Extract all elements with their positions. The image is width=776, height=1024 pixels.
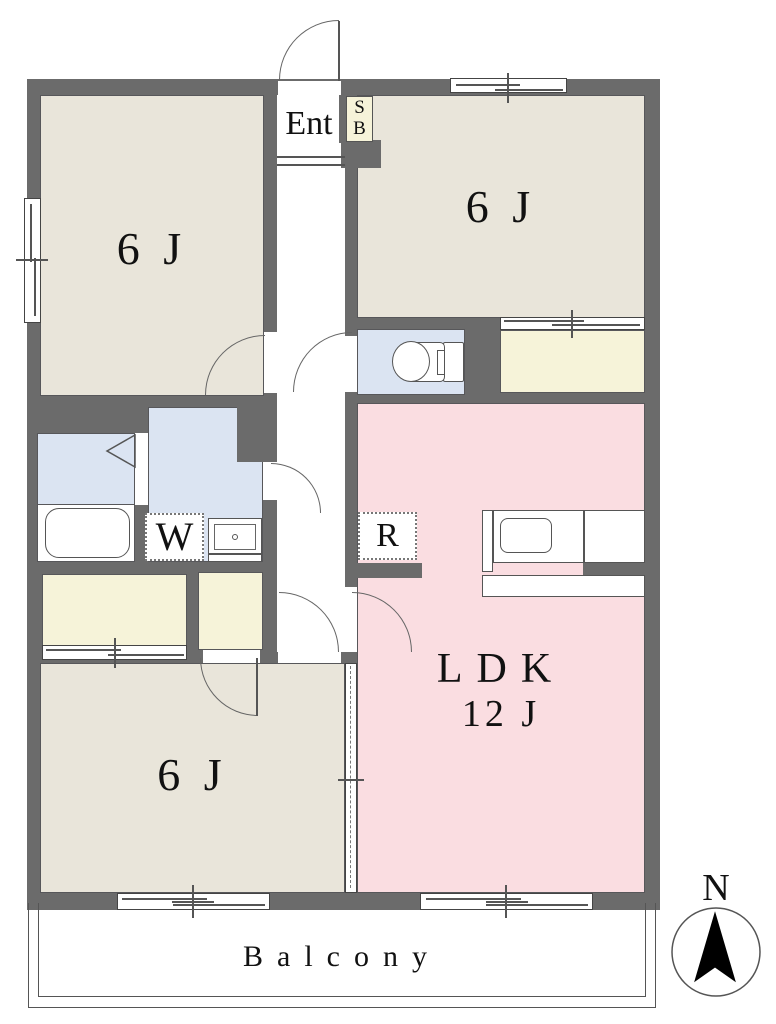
shoe-box-label-s: S: [347, 98, 372, 119]
kitchen-sink: [500, 518, 552, 553]
entrance-door-opening: [278, 81, 341, 95]
window-bedroom-ne-top: [450, 78, 567, 93]
window-bedroom-ne-top-pane1: [456, 84, 520, 86]
window-bedroom-nw-left-pane1: [30, 204, 32, 262]
window-bedroom-nw-left: [24, 198, 41, 323]
shoe-box: S B: [346, 96, 373, 142]
entrance-step-line2: [277, 164, 345, 166]
kitchen-lower-counter: [482, 575, 645, 597]
bath-folding-door-icon: [103, 430, 139, 470]
sliding-door-closet-ne-pane2: [552, 324, 640, 326]
ldk-size-label: 12 J: [357, 692, 645, 736]
shoe-box-label-b: B: [347, 119, 372, 140]
bathtub: [45, 508, 130, 558]
entrance-door-arc: [279, 20, 339, 80]
toilet-tank: [443, 342, 464, 382]
washbasin-drain: [232, 534, 238, 540]
compass-north-label: N: [690, 866, 742, 910]
closet-ne: [500, 330, 645, 393]
toilet-bowl: [392, 341, 430, 382]
wall-stub-kitchen: [345, 563, 422, 578]
sliding-partition-line: [350, 666, 351, 888]
sliding-partition-sw-ldk: [345, 663, 357, 893]
kitchen-counter-divider: [583, 510, 585, 563]
compass-icon: [668, 905, 764, 1001]
window-bedroom-nw-left-pane2: [34, 258, 36, 316]
window-bedroom-ne-top-tick: [507, 73, 509, 103]
bedroom-nw-label: 6 J: [40, 222, 264, 275]
window-bedroom-ne-top-pane2: [495, 89, 563, 91]
bedroom-ne-label: 6 J: [357, 180, 645, 233]
bedroom-sw-door-opening: [278, 652, 341, 663]
refrigerator-label: R: [358, 512, 417, 560]
wall-below-shoebox: [341, 140, 381, 168]
bedroom-nw-door-opening: [264, 332, 277, 393]
bedroom-sw-label: 6 J: [40, 748, 345, 801]
sliding-door-closet-ne-tick: [571, 310, 573, 338]
washbasin-front-line: [208, 553, 262, 555]
sliding-door-closet-sw-tick: [114, 638, 116, 668]
closet-sw-right: [198, 572, 263, 650]
ldk-label: LDK: [357, 645, 645, 693]
window-bedroom-sw-pane1: [122, 898, 207, 900]
entrance-step-line: [277, 156, 345, 158]
wall-washroom-corner: [237, 407, 263, 462]
floor-plan: S B W R: [0, 0, 776, 1024]
entrance-door-leaf: [338, 21, 340, 81]
toilet-seat-hinge: [437, 350, 445, 375]
kitchen-counter-end: [482, 510, 493, 572]
entrance-label: Ent: [277, 105, 341, 143]
sliding-door-closet-sw-pane1: [46, 649, 121, 651]
sliding-door-closet-sw-pane2: [108, 654, 184, 656]
window-ldk-pane1: [426, 898, 521, 900]
closet-sw-right-door-leaf: [256, 658, 258, 716]
washing-machine-label: W: [145, 513, 204, 561]
balcony-label: Balcony: [28, 940, 656, 974]
